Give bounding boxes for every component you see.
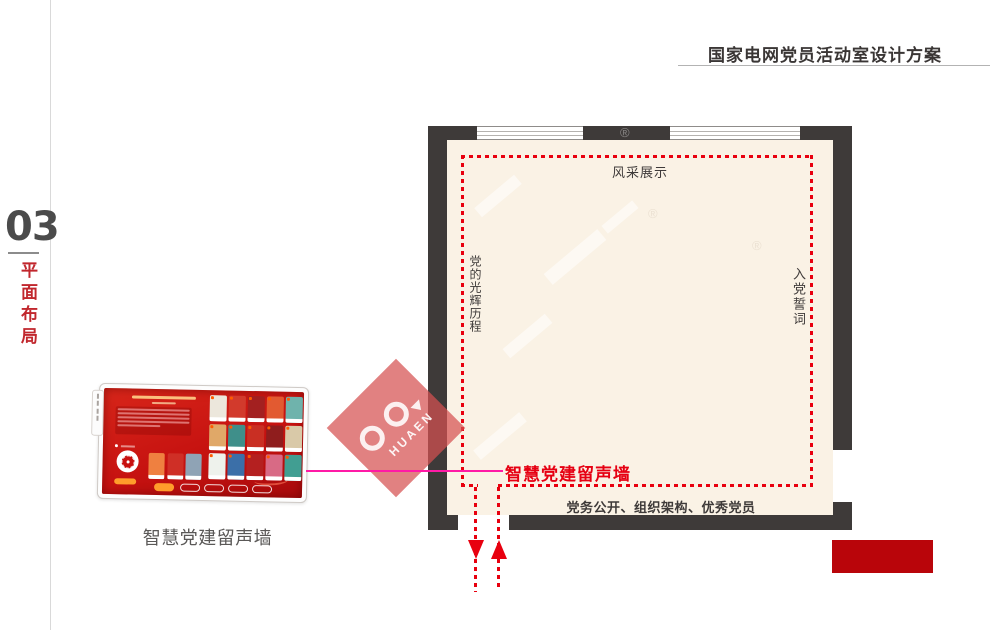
device-caption: 智慧党建留声墙 (130, 524, 285, 550)
dashed-boundary-top (461, 155, 813, 158)
left-divider-line (50, 0, 51, 630)
screen-grid-card (227, 454, 244, 480)
registered-mark-watermark: ® (620, 125, 630, 140)
route-line-enter (497, 487, 500, 590)
screen-left-card (148, 453, 165, 479)
section-title-vertical: 平面布局 (15, 261, 40, 349)
red-accent-block (832, 540, 933, 573)
screen-text-panel (115, 406, 192, 436)
screen-grid-card (247, 425, 264, 451)
screen-grid-card (247, 396, 264, 422)
wall-bottom (509, 515, 852, 530)
page-title: 国家电网党员活动室设计方案 (708, 41, 942, 66)
screen-grid-card (266, 425, 283, 451)
screen-grid-card (209, 395, 226, 421)
screen-grid-card (285, 426, 302, 452)
tab-text-mark (97, 416, 99, 421)
record-disc-center (121, 455, 134, 468)
screen-left-card (185, 454, 202, 480)
screen-primary-pill (154, 483, 174, 491)
registered-mark-watermark: ® (648, 206, 658, 221)
screen-grid-card (285, 397, 302, 423)
screen-outline-pill (180, 484, 200, 492)
zone-label-left: 党的光辉历程 (467, 255, 484, 333)
screen-grid-card (228, 425, 245, 451)
record-disc-icon (116, 450, 138, 472)
enter-arrow-icon (491, 540, 507, 559)
screen-outline-pill (252, 485, 272, 493)
registered-mark-watermark: ® (752, 238, 762, 253)
screen-grid-card (208, 453, 225, 479)
carousel-dash (121, 445, 135, 447)
tab-text-mark (97, 401, 99, 406)
design-plan-page: 03 平面布局 国家电网党员活动室设计方案 ® ® ® (0, 0, 992, 630)
page-title-underline (678, 65, 990, 66)
tab-text-mark (97, 408, 99, 413)
screen-grid-card (266, 396, 283, 422)
wall-right-corner (833, 502, 852, 530)
window-pane-line (670, 135, 800, 136)
record-play-pill (114, 478, 136, 484)
window-right (670, 126, 800, 140)
zone-label-top: 风采展示 (428, 162, 852, 181)
screen-grid-card (209, 424, 226, 450)
text-line (117, 420, 189, 424)
text-line (118, 408, 190, 412)
text-line (118, 412, 190, 416)
window-pane-line (477, 131, 583, 132)
screen-outline-pill (228, 485, 248, 493)
screen-outline-pills (180, 484, 272, 494)
tab-text-mark (97, 393, 99, 398)
exit-arrow-icon (468, 540, 484, 559)
dashed-boundary-left (461, 155, 464, 487)
dashed-boundary-right (810, 155, 813, 487)
zone-label-right: 入党誓词 (789, 267, 808, 327)
window-pane-line (477, 135, 583, 136)
screen-grid-card (228, 396, 245, 422)
smart-wall-device (97, 383, 309, 503)
record-disc-dot (126, 460, 129, 463)
wall-bottom-left-stub (428, 515, 458, 530)
leader-line (306, 470, 503, 472)
screen-left-cards (148, 453, 202, 480)
text-line (117, 424, 160, 427)
text-line (118, 416, 190, 420)
screen-left-card (167, 453, 184, 479)
signature-scribble (254, 475, 288, 487)
device-screen (102, 388, 304, 498)
device-screen-grid (208, 395, 304, 481)
carousel-dot-icon (115, 444, 118, 447)
screen-subtitle-bar (152, 402, 176, 405)
window-pane-line (670, 131, 800, 132)
zone-label-bottom: 党务公开、组织架构、优秀党员 (509, 497, 813, 516)
section-number-underline (8, 252, 39, 254)
device-side-tab (91, 390, 104, 436)
smart-wall-label: 智慧党建留声墙 (505, 460, 631, 485)
window-left (477, 126, 583, 140)
screen-title-bar (132, 396, 196, 400)
screen-outline-pill (204, 484, 224, 492)
section-number: 03 (5, 204, 59, 250)
